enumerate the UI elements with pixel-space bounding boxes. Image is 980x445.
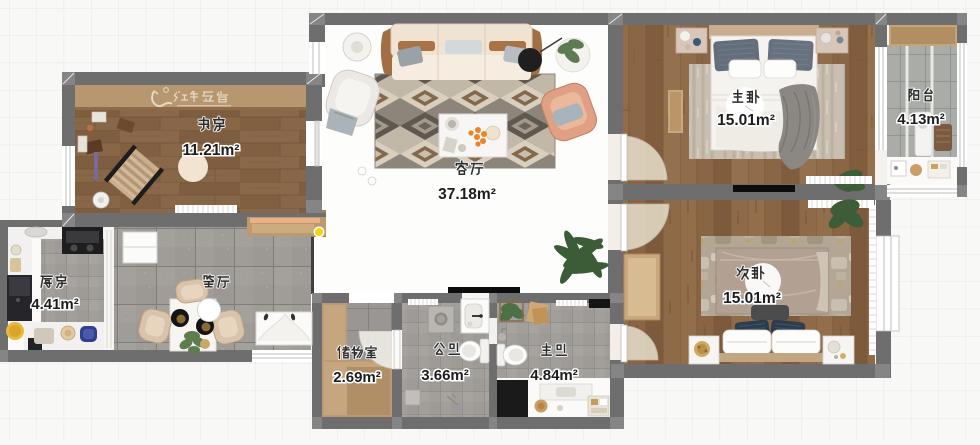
svg-text:3.66m²: 3.66m² bbox=[421, 367, 469, 384]
svg-text:15.01m²: 15.01m² bbox=[723, 290, 781, 307]
svg-text:37.18m²: 37.18m² bbox=[438, 186, 496, 203]
svg-text:15.01m²: 15.01m² bbox=[717, 112, 775, 129]
svg-text:4.13m²: 4.13m² bbox=[897, 111, 945, 128]
svg-text:2.69m²: 2.69m² bbox=[333, 369, 381, 386]
svg-text:4.84m²: 4.84m² bbox=[530, 367, 578, 384]
svg-text:11.21m²: 11.21m² bbox=[183, 142, 240, 159]
svg-text:4.41m²: 4.41m² bbox=[31, 296, 79, 313]
